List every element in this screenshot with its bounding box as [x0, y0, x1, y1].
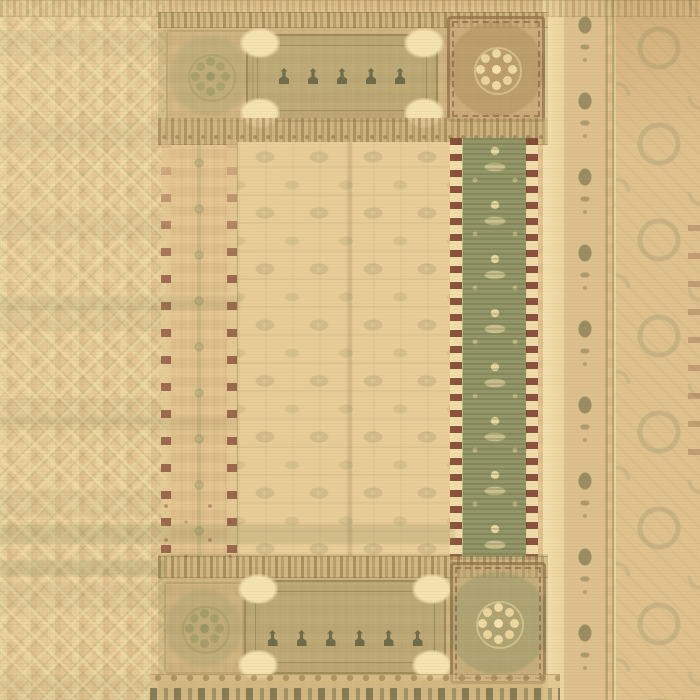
floral-medallion-bottom-left: [164, 582, 244, 674]
tulip-motif: [366, 68, 376, 84]
tulip-motif: [395, 68, 405, 84]
cartouche-corner-lobe: [238, 574, 278, 604]
red-fleck-scatter: [160, 500, 240, 560]
cartouche-corner-lobe: [240, 28, 280, 58]
medallion-flower: [166, 584, 242, 672]
tulip-motif: [413, 630, 423, 646]
abrash-streak: [0, 296, 240, 310]
bottom-dark-row: [150, 688, 560, 700]
cartouche-motif-row: [246, 630, 444, 646]
tulip-motif: [355, 630, 365, 646]
medallion-flower: [450, 19, 542, 119]
green-guard-band: [462, 138, 528, 560]
rug-base-weave: [0, 0, 700, 700]
tulip-motif: [326, 630, 336, 646]
arabesque-top-shadow: [614, 0, 700, 150]
abrash-streak: [0, 560, 165, 576]
maroon-fleck-column: [688, 225, 700, 475]
green-band-reel-right: [526, 138, 538, 560]
panel-cartouche-bottom: [244, 580, 446, 674]
floral-medallion-bottom-right: [450, 562, 546, 684]
abrash-streak: [0, 418, 238, 431]
central-field: [237, 142, 453, 560]
cartouche-motif-row: [248, 68, 436, 84]
motif-stamp-column: [563, 0, 606, 700]
tulip-motif: [384, 630, 394, 646]
panel-cartouche-top: [246, 34, 438, 122]
cartouche-corner-lobe: [404, 28, 444, 58]
double-line-column: [604, 0, 614, 700]
tulip-motif: [337, 68, 347, 84]
tulip-motif: [279, 68, 289, 84]
cartouche-corner-lobe: [412, 574, 452, 604]
floral-medallion-top-right: [447, 16, 545, 122]
medallion-flower: [453, 565, 543, 681]
green-band-reel-left: [450, 138, 462, 560]
rug-photo: [0, 0, 700, 700]
field-crease-line: [348, 142, 352, 560]
left-lattice-field: [0, 0, 166, 700]
tulip-motif: [308, 68, 318, 84]
tulip-motif: [297, 630, 307, 646]
tulip-motif: [268, 630, 278, 646]
bottom-scallop-strip: [150, 674, 560, 689]
